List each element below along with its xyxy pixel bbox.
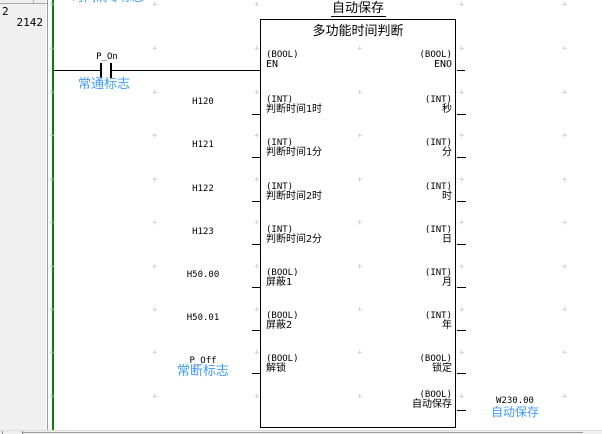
rung-wire-left [54,70,100,71]
input-pin-name: 屏蔽2 [266,321,292,331]
input-operand[interactable]: H122 [158,184,248,194]
input-pin-name: 判断时间2分 [266,235,322,245]
output-operand-comment: 自动保存 [465,406,565,419]
input-operand[interactable]: H121 [158,140,248,150]
input-pin-stub [252,157,261,158]
input-pin-stub [252,330,261,331]
output-pin-stub [457,287,466,288]
fb-instance-name[interactable]: 自动保存 [260,2,456,16]
fb-param-row: (BOOL) 自动保存 W230.00 自动保存 [0,392,602,414]
fb-param-row: H123 (INT) 判断时间2分 (INT) 日 [0,227,602,249]
output-pin-name: 年 [442,321,452,331]
fb-param-row: H120 (INT) 判断时间1时 (INT) 秒 [0,97,602,119]
rung-wire-right [112,70,261,71]
eno-pin-stub [457,70,465,71]
output-pin-name: 自动保存 [412,400,452,410]
output-pin-stub [457,157,466,158]
input-operand[interactable]: H123 [158,227,248,237]
input-pin-stub [252,373,261,374]
step-number: 2142 [6,16,43,29]
output-pin-stub [457,244,466,245]
input-pin-name: 判断时间1时 [266,105,322,115]
output-pin-name: 月 [442,278,452,288]
output-pin-name: 秒 [442,105,452,115]
grid-cross-mark: + [254,45,259,54]
fb-instance-underline [331,16,386,17]
fb-param-row: H50.00 (BOOL) 屏蔽1 (INT) 月 [0,270,602,292]
output-pin-stub [457,373,466,374]
grid-cross-mark: + [459,1,464,10]
output-pin-name: 分 [442,148,452,158]
output-pin-name: 锁定 [432,364,452,374]
input-pin-name: 解锁 [266,364,286,374]
contact-operand[interactable]: P_On [82,52,132,62]
clipped-comment-above: 时间清零标志 [72,0,144,4]
output-pin-stub [457,330,466,331]
fb-definition-name[interactable]: 多功能时间判断 [260,25,456,39]
fb-param-row: H122 (INT) 判断时间2时 (INT) 时 [0,184,602,206]
input-operand[interactable]: H120 [158,97,248,107]
output-pin-name: 时 [442,192,452,202]
input-pin-name: 屏蔽1 [266,278,292,288]
input-pin-stub [252,244,261,245]
fb-param-row: H50.01 (BOOL) 屏蔽2 (INT) 年 [0,313,602,335]
grid-cross-mark: + [254,1,259,10]
output-pin-stub [457,114,466,115]
contact-bar-right[interactable] [110,63,112,78]
input-operand[interactable]: H50.01 [158,313,248,323]
grid-cross-mark: + [562,45,567,54]
grid-cross-mark: + [152,45,157,54]
output-pin-name: 日 [442,235,452,245]
fb-param-row: H121 (INT) 判断时间1分 (INT) 分 [0,140,602,162]
contact-bar-left[interactable] [100,63,102,78]
horizontal-scrollbar[interactable] [0,430,602,434]
rung-divider-tick [33,0,34,3]
output-pin-stub [457,201,466,202]
contact-comment: 常通标志 [78,78,130,91]
grid-cross-mark: + [562,1,567,10]
eno-pin-label: ENO [434,59,452,70]
input-pin-name: 判断时间1分 [266,148,322,158]
input-operand[interactable]: H50.00 [158,270,248,280]
input-pin-name: 判断时间2时 [266,192,322,202]
ladder-editor-canvas: 2 2142 时间清零标志 P_On 常通标志 自动保存 多功能时间判断 (BO… [0,0,602,434]
input-pin-stub [252,287,261,288]
rung-divider-line [0,3,47,4]
input-operand-comment: 常断标志 [158,365,248,378]
grid-cross-mark: + [459,45,464,54]
input-pin-stub [252,201,261,202]
grid-cross-mark: + [152,1,157,10]
en-pin-label: EN [266,59,278,70]
fb-param-row: P_Off 常断标志 (BOOL) 解锁 (BOOL) 锁定 [0,356,602,378]
input-pin-stub [252,114,261,115]
